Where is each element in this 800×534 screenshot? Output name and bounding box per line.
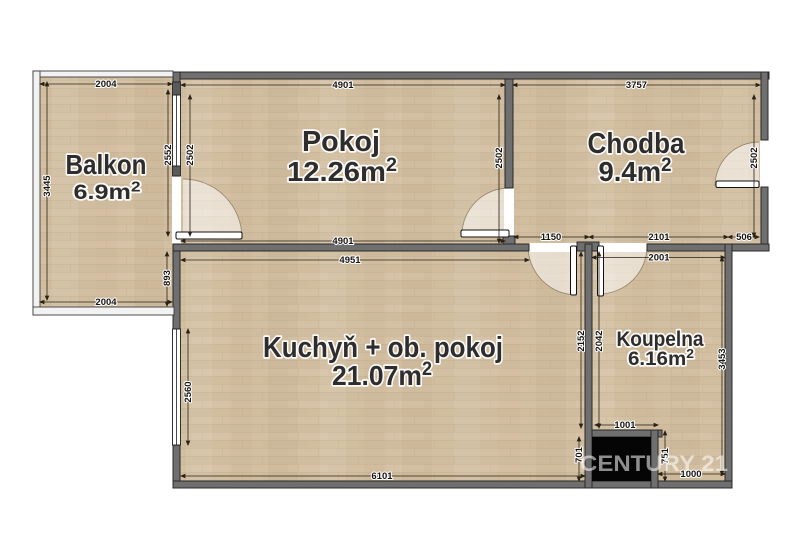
svg-text:2004: 2004 [95,297,117,308]
svg-text:3453: 3453 [717,348,728,369]
svg-text:2042: 2042 [594,330,605,351]
svg-text:4901: 4901 [332,80,354,91]
svg-text:2101: 2101 [648,232,670,243]
svg-text:3757: 3757 [626,80,647,91]
svg-text:Pokoj: Pokoj [302,126,380,158]
svg-text:1001: 1001 [614,420,636,431]
svg-text:2502: 2502 [185,144,196,165]
svg-text:Balkon: Balkon [66,149,147,180]
svg-text:4901: 4901 [332,236,354,247]
svg-text:9.4m2: 9.4m2 [599,155,672,187]
svg-text:3445: 3445 [42,175,53,197]
svg-text:CENTURY 21: CENTURY 21 [580,451,728,476]
svg-text:2502: 2502 [749,147,760,168]
svg-text:1150: 1150 [541,232,562,243]
svg-text:6.16m2: 6.16m2 [628,346,694,370]
svg-text:506: 506 [736,232,752,243]
svg-text:4951: 4951 [339,255,361,266]
svg-text:893: 893 [162,270,173,286]
svg-text:2001: 2001 [648,253,670,264]
svg-text:2004: 2004 [95,79,117,90]
svg-text:6.9m2: 6.9m2 [74,179,141,204]
svg-text:21.07m2: 21.07m2 [332,359,432,391]
svg-text:2502: 2502 [494,147,505,168]
svg-text:12.26m2: 12.26m2 [287,155,397,187]
svg-text:2560: 2560 [183,381,194,402]
svg-text:6101: 6101 [371,471,393,482]
svg-text:2552: 2552 [163,144,174,165]
svg-text:2152: 2152 [576,330,587,351]
